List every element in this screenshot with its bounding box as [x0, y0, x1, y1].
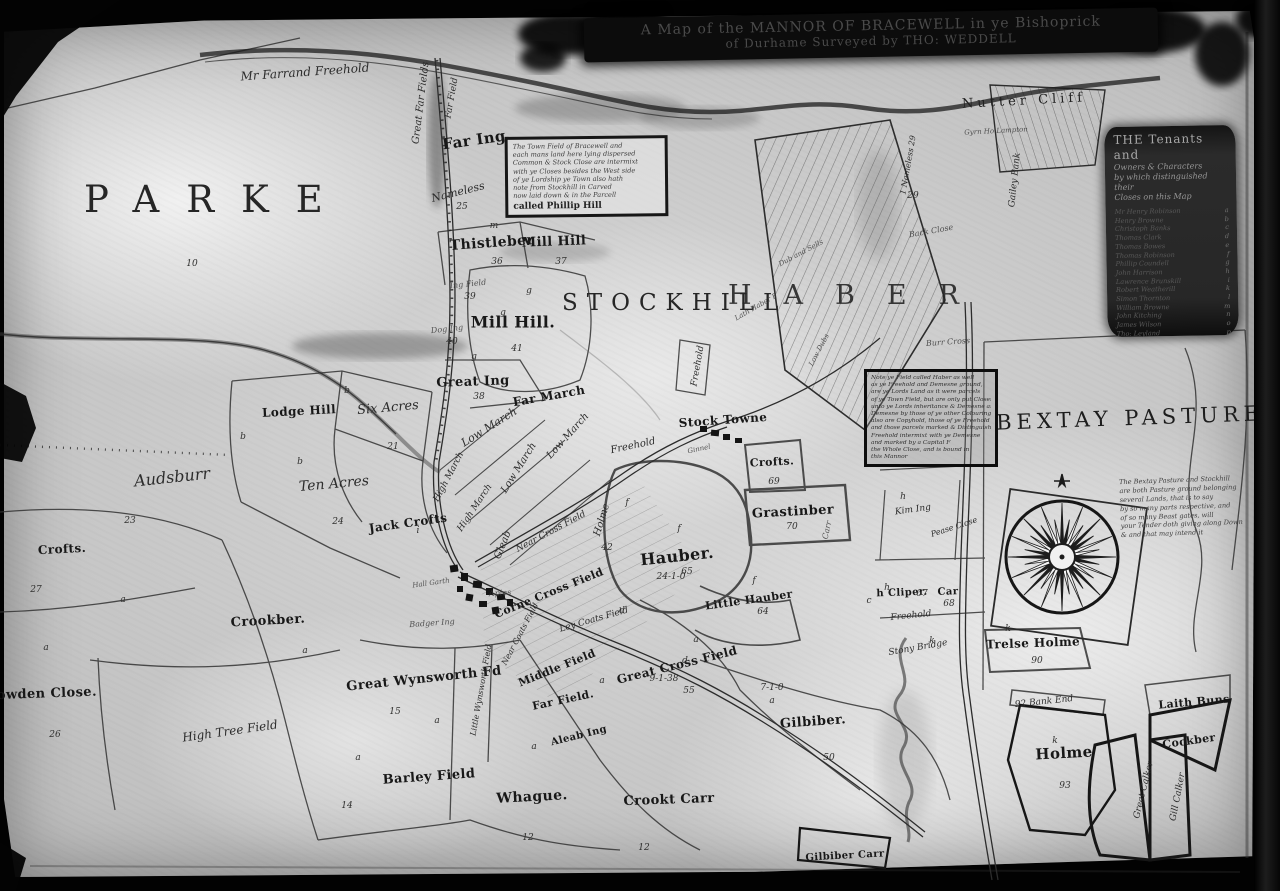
note-b-text: Note ye Field called Haber as wellas ye … [871, 375, 991, 461]
tenant-mark: b [1224, 215, 1228, 224]
legend-heading-line: by which distinguished their [1114, 171, 1228, 193]
note-bextay-pasture: The Bextay Pasture and Stockhillare both… [1119, 474, 1243, 540]
compass-ray [1024, 519, 1055, 550]
compass-ray [1008, 555, 1050, 558]
note-box-phillip-hill: The Town Field of Bracewell andeach mans… [505, 135, 669, 218]
compass-ray [1074, 555, 1116, 558]
tenant-mark: p [1226, 328, 1230, 337]
tenant-mark: h [1225, 267, 1229, 276]
tenant-mark: a [1225, 206, 1229, 215]
note-line: as ye Freehold and Demesne ground, [871, 382, 991, 389]
tenant-mark: d [1225, 232, 1229, 241]
note-line: Freehold intermixt with ye Demesne [871, 433, 991, 440]
tenant-mark: o [1227, 319, 1231, 328]
tenant-mark: l [1228, 293, 1230, 302]
photo-mat-right-edge [1254, 0, 1280, 891]
note-line: unto ye Lords inheritance & Demesne and [871, 404, 991, 411]
note-line: now laid down & in the Parcell [513, 191, 660, 201]
note-line: are ye Lords Land as it were parcels [871, 389, 991, 396]
tenant-mark: i [1228, 276, 1230, 285]
note-box-haber: Note ye Field called Haber as wellas ye … [864, 369, 998, 467]
compass-ray [1024, 564, 1055, 595]
note-line: and marked by a Capital F [871, 440, 991, 447]
tenant-list: Mr Henry RobinsonaHenry BrownebChristoph… [1115, 206, 1231, 339]
note-line: also are Copyhold, those of ye Freehold [871, 418, 991, 425]
note-line: Note ye Field called Haber as well [871, 375, 991, 382]
map-linework [0, 0, 1280, 891]
note-a-last-line: called Phillip Hill [513, 200, 660, 212]
region-label-haber: HABER [728, 280, 991, 311]
tenant-name: Tho: Leyland [1117, 329, 1161, 338]
tenant-mark: e [1225, 241, 1229, 250]
compass-ray [1069, 564, 1100, 595]
tenant-mark: c [1225, 223, 1229, 232]
note-bextay-text: The Bextay Pasture and Stockhillare both… [1119, 474, 1243, 540]
legend-heading-line: THE Tenants and [1113, 131, 1228, 163]
legend-heading: THE Tenants and Owners & Characters by w… [1113, 131, 1228, 203]
note-a-text: The Town Field of Bracewell andeach mans… [513, 141, 661, 200]
legend-scroll: THE Tenants and Owners & Characters by w… [1104, 125, 1239, 337]
compass-ray [1060, 569, 1063, 611]
compass-ray [1060, 503, 1063, 545]
tenant-mark: g [1225, 258, 1229, 267]
note-line: and those parcels marked & Distinguished [871, 425, 991, 432]
map-photo: PARKE STOCKHILL HABER BEXTAY PASTURE Mr … [0, 0, 1280, 891]
compass-ray [1069, 519, 1100, 550]
note-line: this Mannor [871, 454, 991, 461]
region-label-parke: PARKE [84, 178, 350, 221]
tenant-mark: m [1224, 302, 1230, 311]
tenant-mark: f [1227, 250, 1230, 259]
note-line: the Whole Close, and is bound in [871, 447, 991, 454]
note-line: of ye Town Field, but are only put Close… [871, 397, 991, 404]
tenant-mark: k [1226, 284, 1230, 293]
tenant-mark: n [1226, 310, 1230, 319]
note-line: Demesne by those of ye other Colourings [871, 411, 991, 418]
north-star-icon [1054, 474, 1070, 486]
legend-heading-line: Closes on this Map [1114, 191, 1228, 203]
